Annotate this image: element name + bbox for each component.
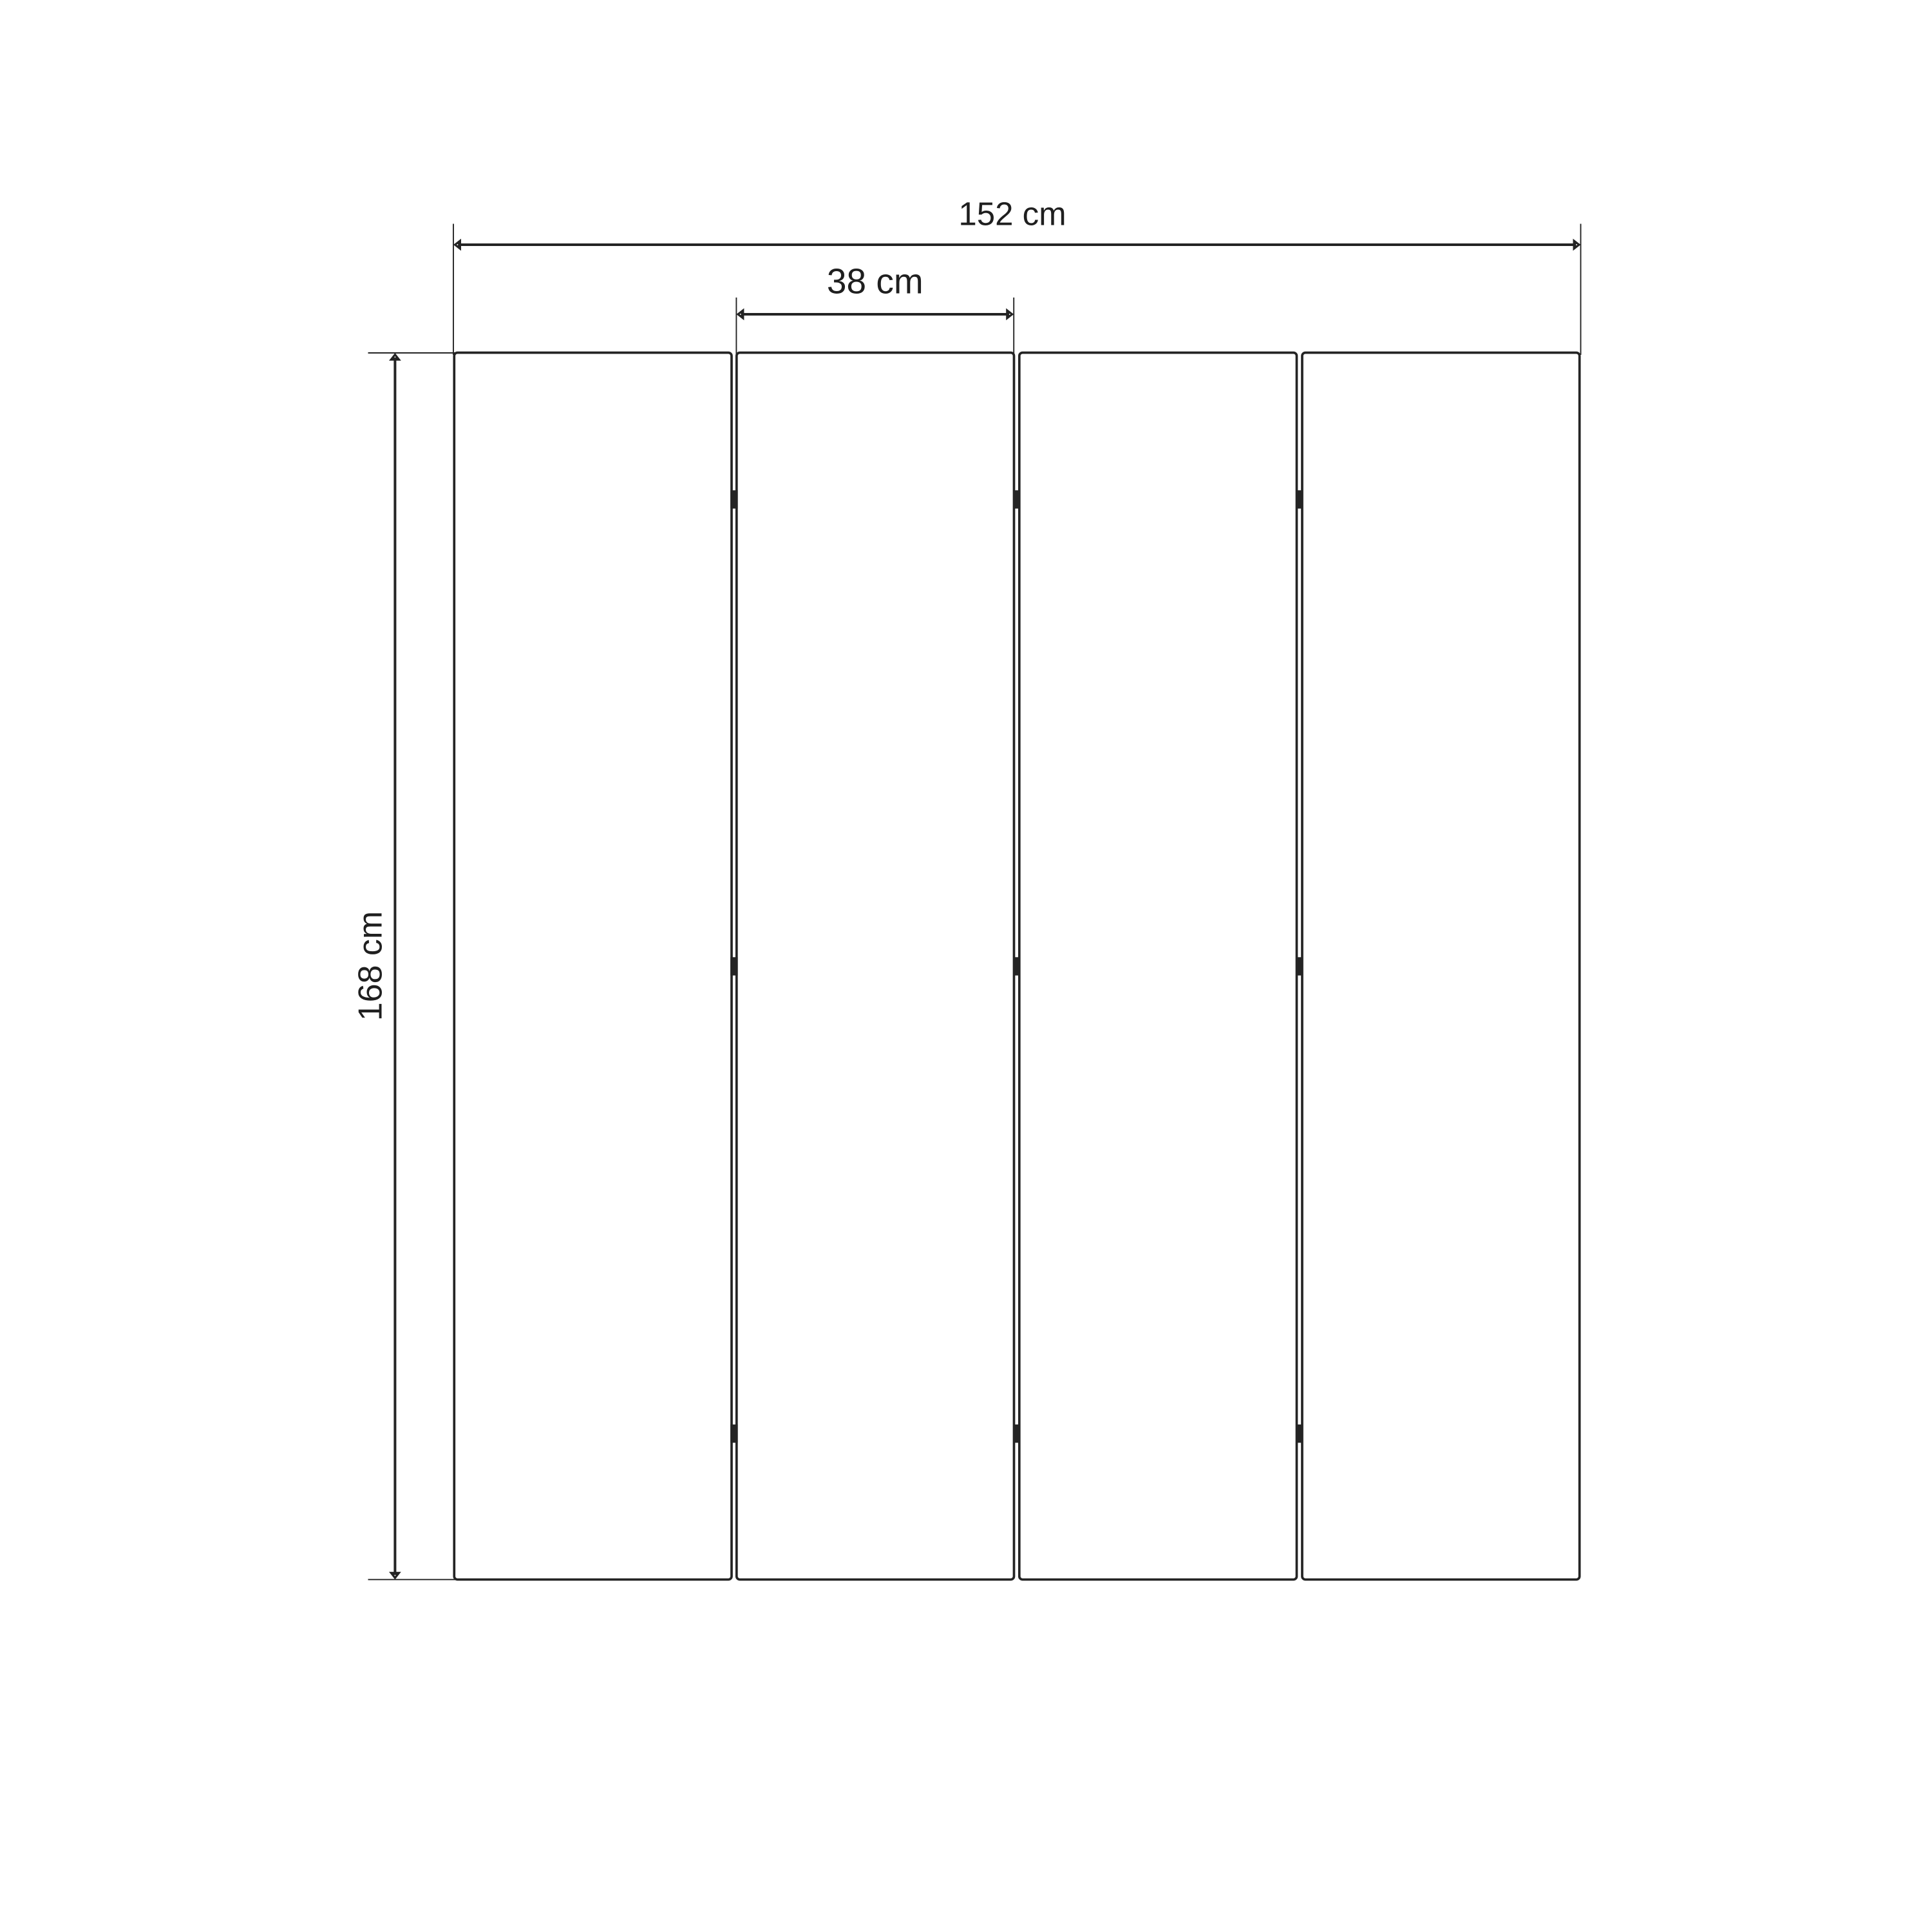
svg-text:38 cm: 38 cm bbox=[827, 261, 923, 301]
svg-text:152 cm: 152 cm bbox=[958, 196, 1066, 232]
svg-text:168 cm: 168 cm bbox=[352, 911, 390, 1021]
